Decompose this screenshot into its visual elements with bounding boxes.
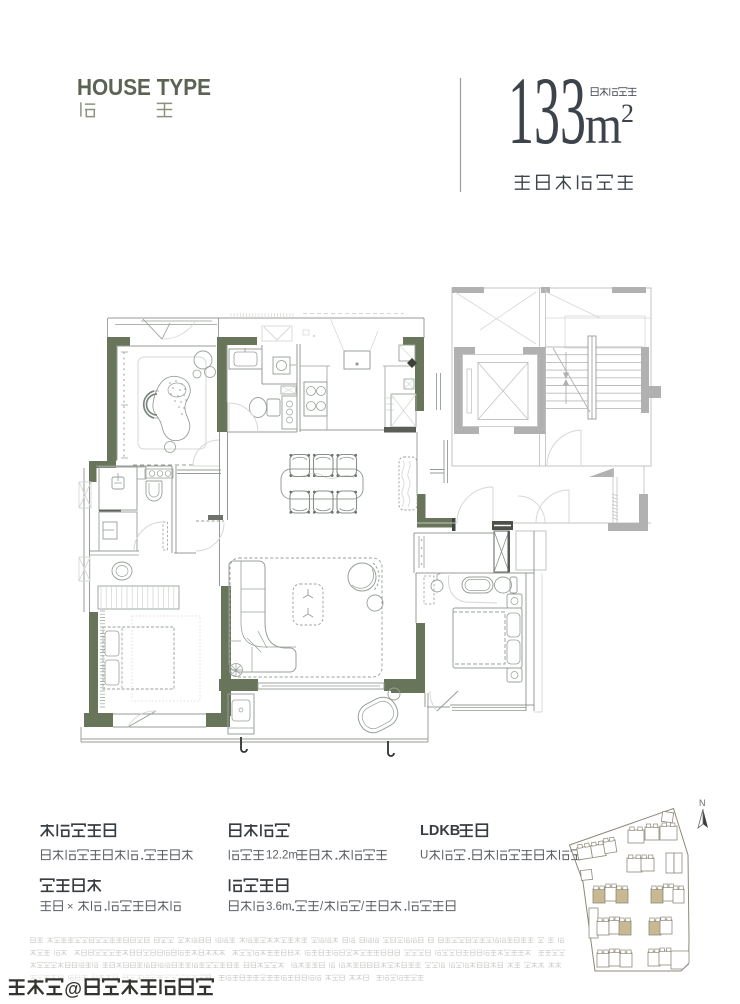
svg-text:U: U: [420, 850, 428, 862]
svg-text:3.6m: 3.6m: [266, 901, 292, 913]
svg-text:133: 133: [508, 57, 586, 164]
svg-text:HOUSE TYPE: HOUSE TYPE: [77, 74, 211, 100]
svg-text:m: m: [585, 95, 622, 155]
svg-text:×: ×: [67, 901, 73, 913]
svg-text:@: @: [64, 979, 82, 999]
svg-text:LDKB: LDKB: [420, 823, 460, 839]
svg-text:12.2m: 12.2m: [266, 850, 298, 862]
svg-text:2: 2: [621, 99, 634, 128]
svg-text:N: N: [699, 798, 706, 808]
